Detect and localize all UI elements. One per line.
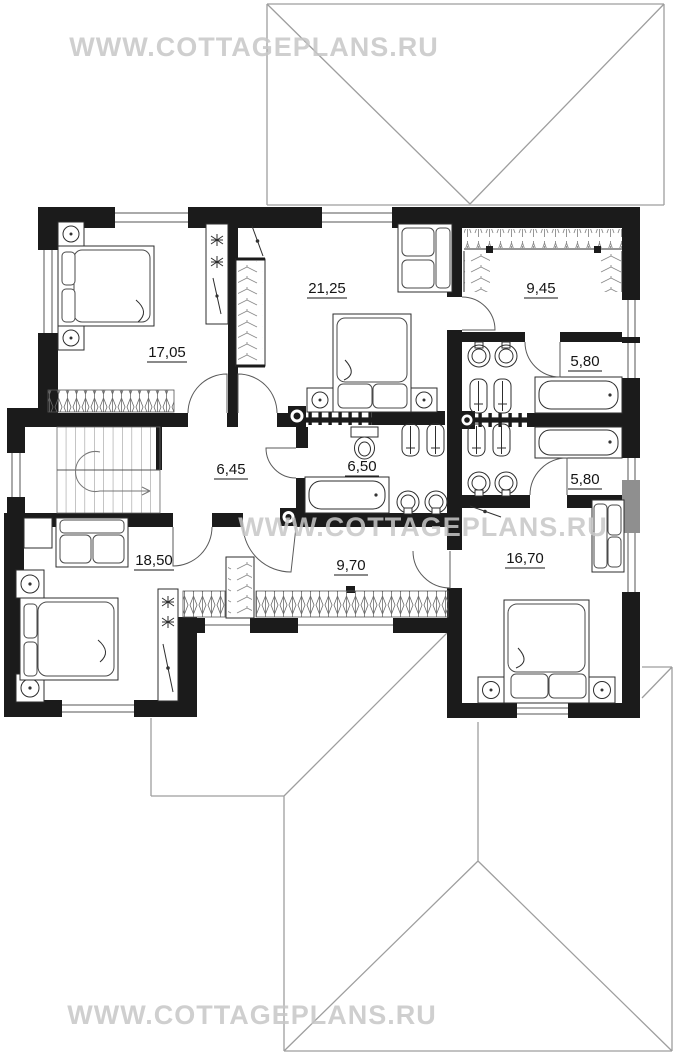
open-wardrobe-icon [226,557,254,618]
nightstand-lamp-icon [589,677,615,703]
radiator-icon [256,591,448,617]
nightstand-lamp-icon [307,388,333,412]
dresser-plants-icon [206,224,228,324]
built-in-shelf [306,411,372,425]
room-label-bathroom-right: 5,80 [568,471,602,489]
staircase [57,427,160,513]
nightstand-lamp-icon [411,388,437,412]
bedroom-top-middle-furniture [236,224,452,412]
nightstand-lamp-icon [58,326,84,350]
svg-text:6,45: 6,45 [216,461,245,478]
svg-text:5,80: 5,80 [570,353,599,370]
radiator-icon [183,591,225,617]
built-in-shelf [475,413,527,427]
svg-text:9,70: 9,70 [336,557,365,574]
watermark-middle: WWW.COTTAGEPLANS.RU [238,512,607,542]
floor-plan-drawing: 17,05 21,25 9,45 5,80 6,45 6,50 5,80 18,… [0,0,673,1055]
double-bed-icon [58,246,154,326]
sink-icon [468,342,490,367]
watermark-top: WWW.COTTAGEPLANS.RU [69,32,438,62]
svg-text:5,80: 5,80 [570,471,599,488]
svg-text:17,05: 17,05 [148,344,186,361]
door-bathroom-middle [266,448,296,478]
vent-shaft-icon [288,406,306,426]
svg-text:9,45: 9,45 [526,280,555,297]
towel-radiator-icon [470,379,487,413]
party-wall-segment [622,478,640,533]
floor-plan-page: 17,05 21,25 9,45 5,80 6,45 6,50 5,80 18,… [0,0,673,1055]
bathtub-icon [305,477,389,513]
door-bathroom-upper [525,342,560,377]
svg-text:21,25: 21,25 [308,280,346,297]
room-label-bedroom-16: 16,70 [505,550,545,568]
door-bedroom-18 [173,527,212,566]
sink-icon [397,491,419,514]
door-bedroom-17 [188,374,227,413]
svg-text:18,50: 18,50 [135,552,173,569]
sink-icon [495,342,517,367]
standing-mirror-icon [252,226,263,256]
corridor-furniture [183,591,448,617]
nightstand-lamp-icon [58,222,84,246]
double-bed-icon [20,598,118,680]
room-label-bedroom-18: 18,50 [134,552,174,570]
door-bedroom-21 [238,374,277,413]
room-label-hall: 6,45 [214,461,248,479]
door-bedroom-16 [413,551,450,588]
room-label-bathroom-upper: 5,80 [568,353,602,371]
sofa-icon [56,518,128,567]
hanger-rail-icon [464,251,490,292]
room-label-corridor: 9,70 [334,557,368,575]
towel-radiator-icon [493,424,510,456]
toilet-icon [351,427,378,459]
radiator-icon [48,390,174,412]
hanger-rail-icon [596,251,622,292]
bathtub-icon [535,377,622,413]
room-label-bathroom-middle: 6,50 [345,458,379,476]
sink-icon [425,491,447,514]
svg-text:6,50: 6,50 [347,458,376,475]
nightstand-lamp-icon [16,570,44,598]
watermarks: WWW.COTTAGEPLANS.RU WWW.COTTAGEPLANS.RU … [67,32,607,1030]
svg-text:16,70: 16,70 [506,550,544,567]
door-bathroom-right [530,458,567,495]
dresser-plants-icon [158,589,178,701]
door-closet [462,297,495,330]
room-label-bedroom-17: 17,05 [147,344,187,362]
room-label-bedroom-21: 21,25 [307,280,347,298]
towel-radiator-icon [427,424,444,456]
double-bed-icon [333,314,411,412]
vent-shaft-icon [459,411,475,429]
bathtub-icon [535,427,622,458]
sink-icon [468,472,490,496]
sofa-icon [398,224,452,292]
hanger-rail-icon [464,229,622,253]
double-bed-icon [504,600,589,703]
cabinet-icon [24,518,52,548]
watermark-bottom: WWW.COTTAGEPLANS.RU [67,1000,436,1030]
towel-radiator-icon [494,379,511,413]
nightstand-lamp-icon [478,677,504,703]
room-label-closet: 9,45 [524,280,558,298]
open-wardrobe-icon [236,259,265,366]
sink-icon [495,472,517,496]
towel-radiator-icon [402,424,419,456]
